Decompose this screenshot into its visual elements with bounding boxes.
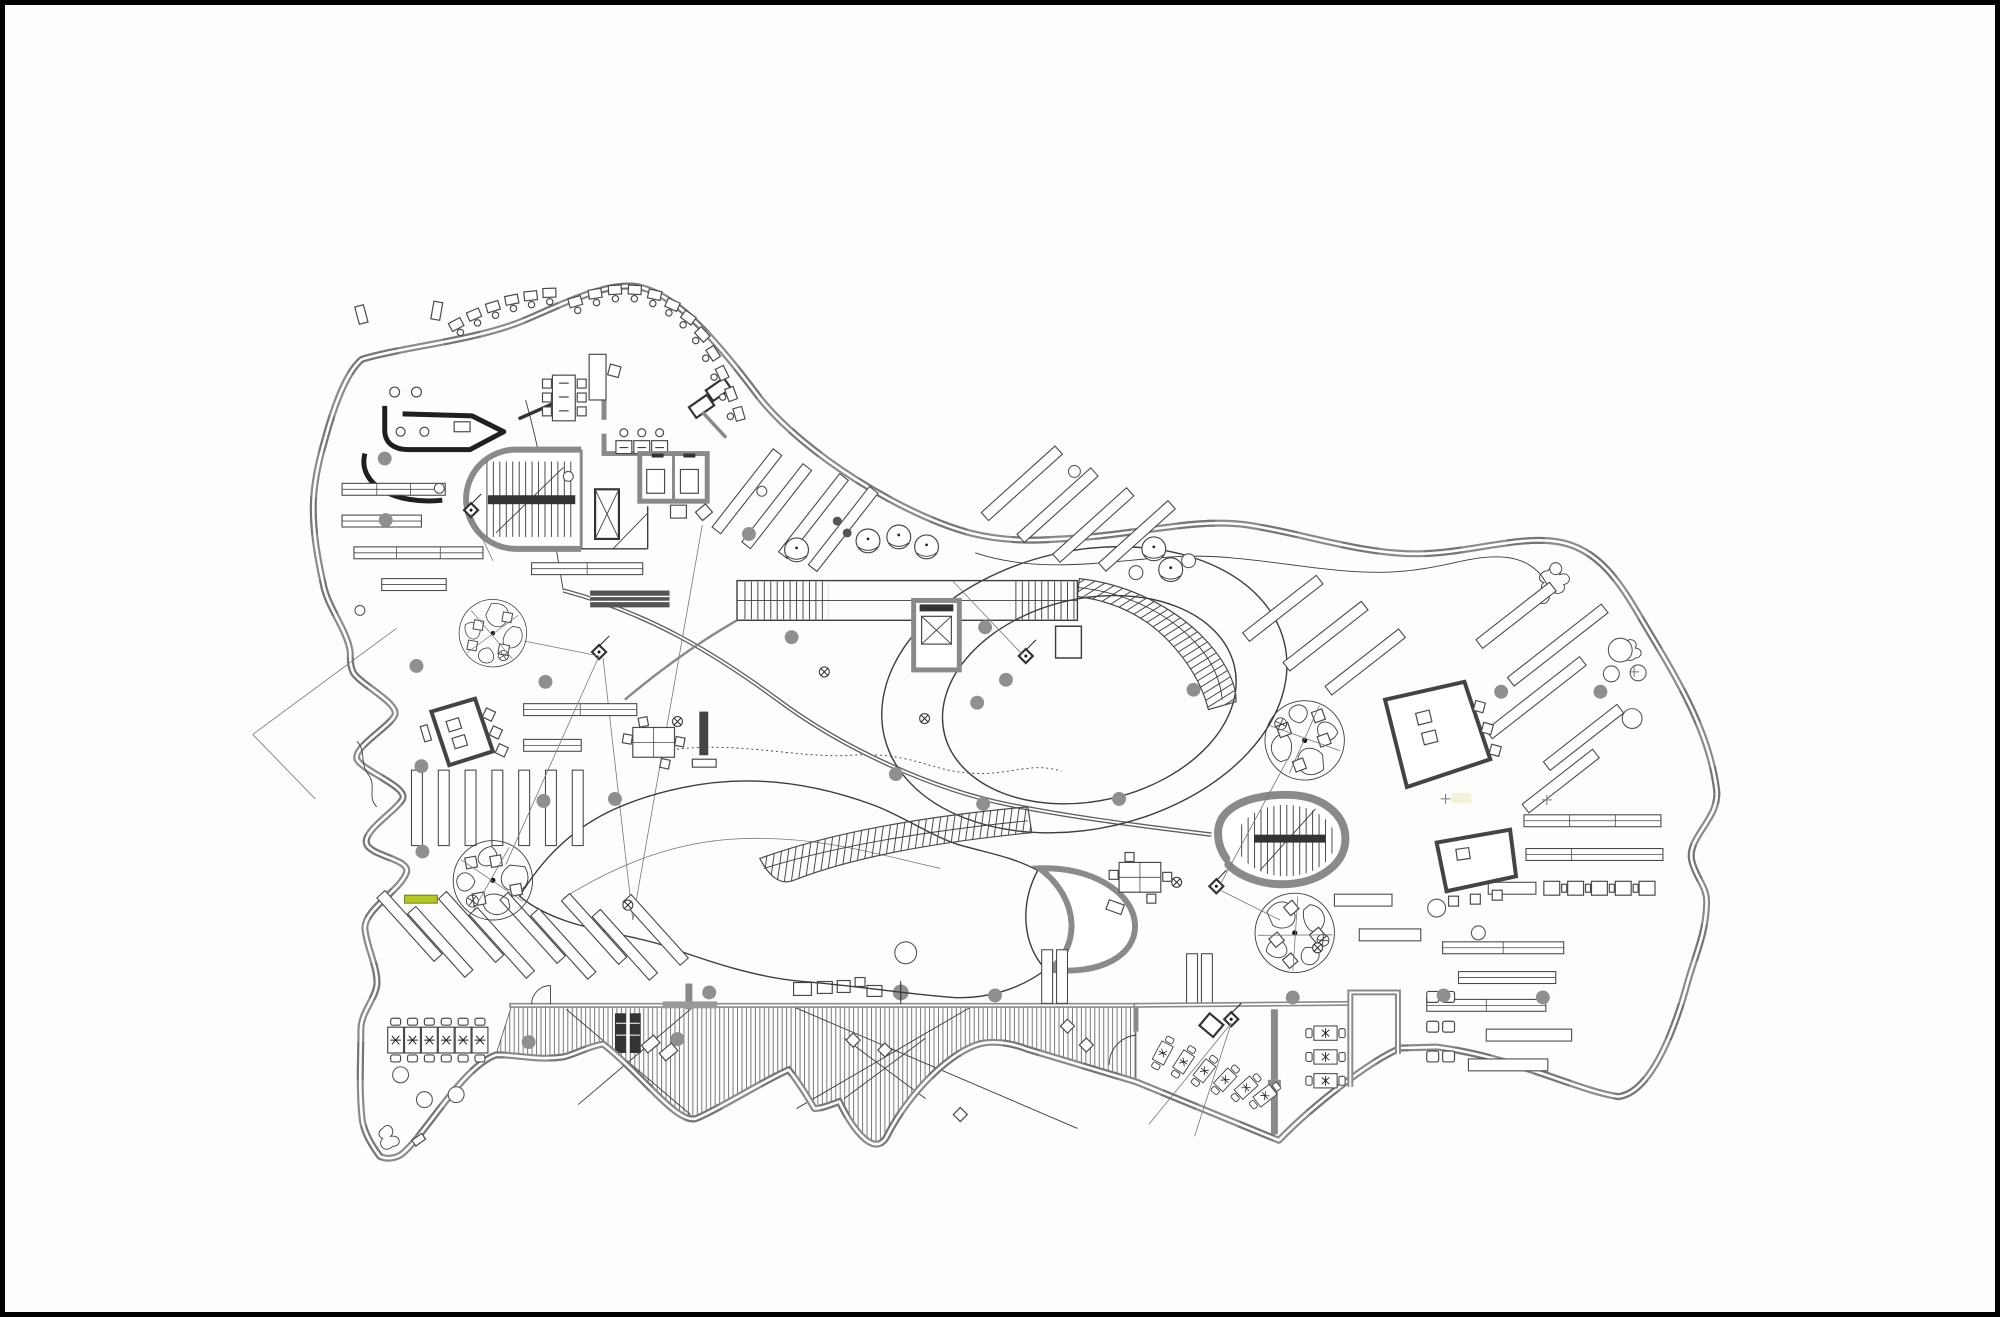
computer-clusters xyxy=(622,504,1171,915)
elevator-bank xyxy=(640,454,707,502)
table-stack xyxy=(1306,1026,1345,1088)
elevator-1 xyxy=(595,489,619,539)
curved-stair-lower xyxy=(760,807,1032,882)
curved-stair-upper xyxy=(1077,579,1236,710)
southeast-rooms xyxy=(1136,991,1455,1136)
floor-plan-canvas xyxy=(5,5,1995,1312)
desk-east-1 xyxy=(1385,682,1501,787)
cluster-2 xyxy=(1106,853,1172,915)
accent-highlight-bar xyxy=(405,895,438,903)
teardrop-stair xyxy=(1218,795,1345,884)
meeting-table xyxy=(543,375,587,421)
oval-stair xyxy=(466,450,707,549)
floor-drains xyxy=(623,667,1323,953)
south-table-row xyxy=(388,1018,488,1107)
plan-sheet xyxy=(0,0,2000,1317)
shelving-southwest-diagonal xyxy=(377,891,688,981)
cluster-1 xyxy=(622,504,716,769)
media-units xyxy=(1544,881,1655,895)
outdoor-deck xyxy=(496,978,1136,1145)
plant-scribble xyxy=(379,1125,399,1149)
desk-west xyxy=(420,699,508,765)
copier-row xyxy=(616,429,668,454)
dark-shelf xyxy=(590,591,669,608)
kiosk-desks xyxy=(689,378,731,438)
